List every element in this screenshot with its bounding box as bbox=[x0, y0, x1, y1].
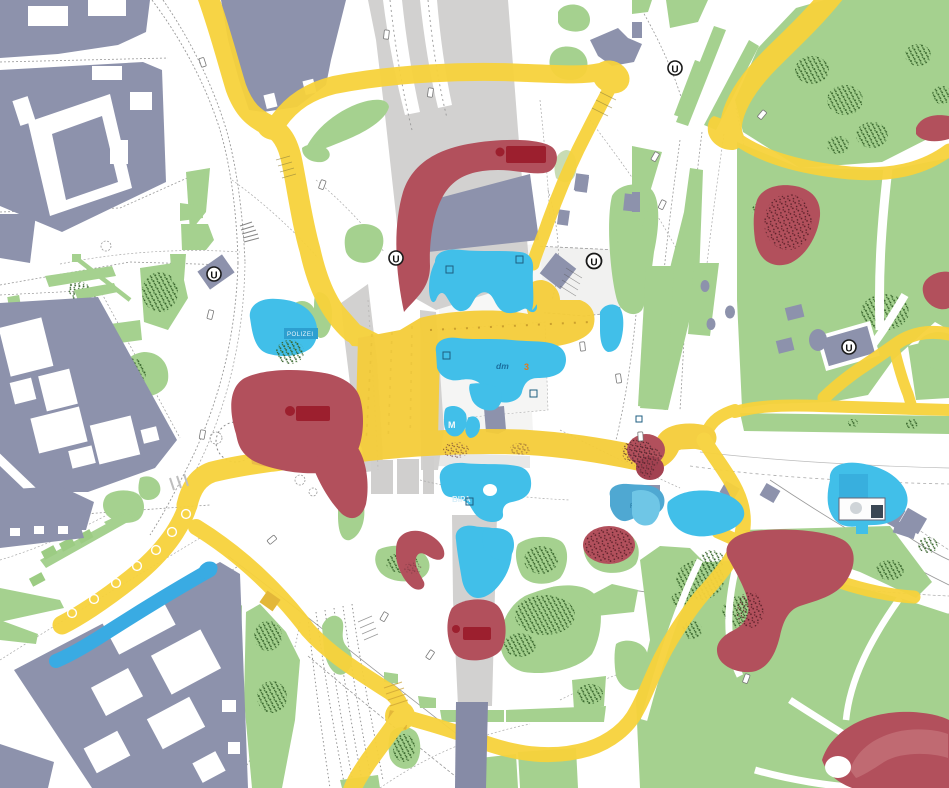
svg-text:dm: dm bbox=[496, 361, 509, 371]
svg-text:U: U bbox=[671, 65, 678, 76]
svg-text:U: U bbox=[845, 344, 852, 355]
svg-text:M: M bbox=[448, 420, 456, 430]
svg-text:U: U bbox=[392, 255, 399, 266]
svg-text:3: 3 bbox=[524, 362, 529, 372]
svg-text:POLIZEI: POLIZEI bbox=[287, 332, 314, 338]
svg-text:U: U bbox=[590, 258, 597, 269]
svg-text:BIPA: BIPA bbox=[452, 495, 471, 504]
svg-text:U: U bbox=[210, 271, 217, 282]
